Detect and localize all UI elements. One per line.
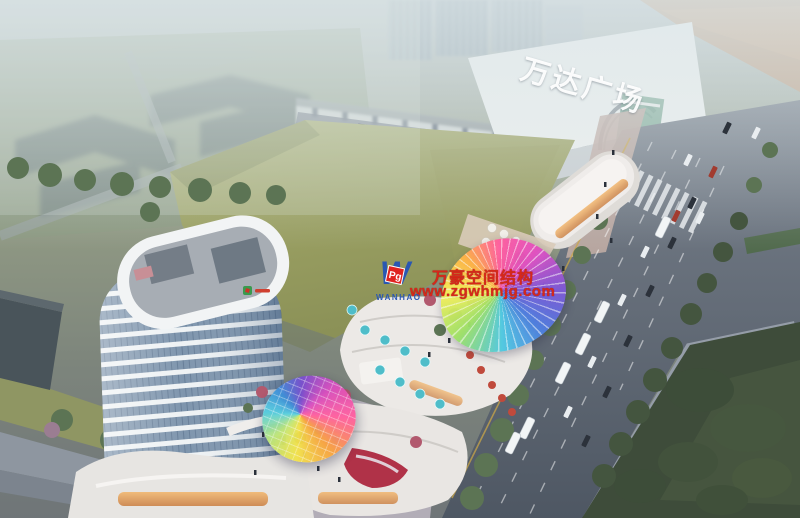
aerial-rendering-scene: 万达广场 W Pg WANHAO 万豪空间结构 www.zgwhmjg.com <box>0 0 800 518</box>
wanhao-logo-icon: W Pg WANHAO <box>374 254 432 304</box>
logo-wordmark: WANHAO <box>376 293 421 302</box>
watermark: W Pg WANHAO 万豪空间结构 www.zgwhmjg.com <box>374 254 644 314</box>
haze-overlay-left <box>0 0 420 215</box>
logo-badge: Pg <box>386 266 405 285</box>
